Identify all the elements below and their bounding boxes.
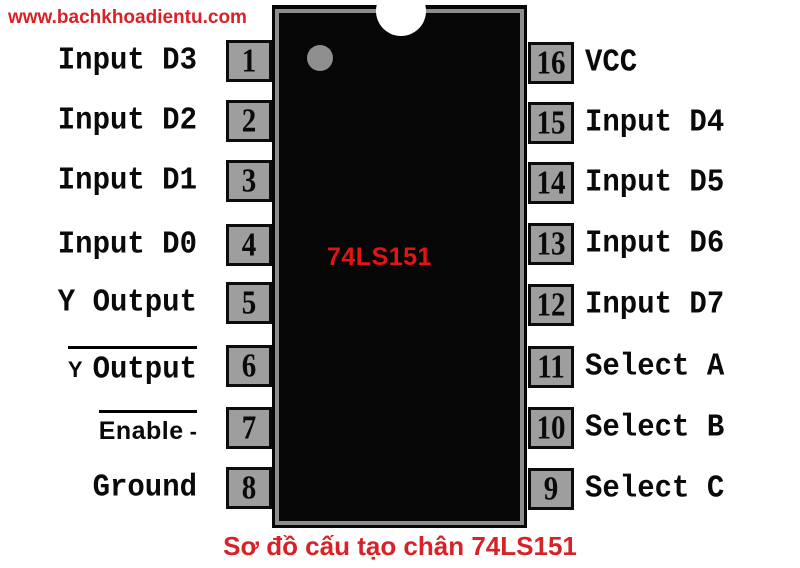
pin-number: 2 — [242, 104, 257, 137]
pin-label-suffix: - — [190, 419, 197, 445]
pin-label-text: Select B — [585, 409, 724, 446]
pin-row-12: 12Input D7 — [528, 284, 800, 326]
pin-number-box: 7 — [226, 407, 272, 449]
pin-number-box: 2 — [226, 100, 272, 142]
pin-number-box: 9 — [528, 468, 574, 510]
pin-number: 10 — [537, 411, 566, 444]
pin-label-text: VCC — [585, 44, 637, 81]
pin-number: 5 — [242, 286, 257, 319]
pin-label-text: Input D3 — [58, 42, 197, 79]
pin-number: 13 — [537, 227, 566, 260]
pin-label: Ground — [0, 467, 197, 509]
pin-number: 1 — [242, 44, 257, 77]
pin-label-text: Y Output — [58, 284, 197, 321]
pin-number-box: 11 — [528, 346, 574, 388]
pin-label: Input D4 — [585, 102, 800, 144]
pin-label: Select A — [585, 346, 800, 388]
pin-label: YOutput — [0, 345, 197, 387]
pin-number-box: 14 — [528, 162, 574, 204]
pinout-diagram: www.bachkhoadientu.com 74LS151 Input D31… — [0, 0, 800, 568]
pin-label: Input D5 — [585, 162, 800, 204]
pin-number-box: 3 — [226, 160, 272, 202]
pin-row-4: Input D04 — [0, 224, 272, 266]
pin-label-text: Select C — [585, 470, 724, 507]
pin-row-8: Ground8 — [0, 467, 272, 509]
pin-number-box: 12 — [528, 284, 574, 326]
watermark-url: www.bachkhoadientu.com — [8, 7, 247, 29]
pin-row-9: 9Select C — [528, 468, 800, 510]
pin-number: 7 — [242, 411, 257, 444]
pin-number: 12 — [537, 288, 566, 321]
pin-number-box: 15 — [528, 102, 574, 144]
pin-label-text: Input D0 — [58, 226, 197, 263]
pin-row-14: 14Input D5 — [528, 162, 800, 204]
pin-number-box: 8 — [226, 467, 272, 509]
pin-number: 14 — [537, 166, 566, 199]
pin-row-1: Input D31 — [0, 40, 272, 82]
pin-number-box: 16 — [528, 42, 574, 84]
pin1-marker-dot — [307, 45, 333, 71]
pin-label: Select B — [585, 407, 800, 449]
pin-label: Input D3 — [0, 40, 197, 82]
pin-label-text: Input D7 — [585, 286, 724, 323]
pin-row-13: 13Input D6 — [528, 223, 800, 265]
pin-label: Input D2 — [0, 100, 197, 142]
chip-part-number: 74LS151 — [327, 243, 432, 272]
pin-row-15: 15Input D4 — [528, 102, 800, 144]
pin-row-3: Input D13 — [0, 160, 272, 202]
pin-number: 15 — [537, 106, 566, 139]
pin-label-text: Enable — [99, 417, 184, 446]
pin-label-text: Input D1 — [58, 162, 197, 199]
pin-row-2: Input D22 — [0, 100, 272, 142]
pin-label-text: Input D4 — [585, 104, 724, 141]
diagram-caption: Sơ đồ cấu tạo chân 74LS151 — [0, 531, 800, 562]
pin-number-box: 13 — [528, 223, 574, 265]
pin-row-5: Y Output5 — [0, 282, 272, 324]
pin-label: VCC — [585, 42, 800, 84]
pin-number: 11 — [537, 350, 564, 383]
pin-number-box: 1 — [226, 40, 272, 82]
pin-row-7: Enable-7 — [0, 407, 272, 449]
pin-number-box: 5 — [226, 282, 272, 324]
pin-label-text: Ground — [93, 469, 197, 506]
pin-label: Input D6 — [585, 223, 800, 265]
pin-row-16: 16VCC — [528, 42, 800, 84]
chip-body: 74LS151 — [272, 5, 527, 528]
pin-number: 9 — [544, 472, 559, 505]
pin-label-text: Select A — [585, 348, 724, 385]
pin-label-text: Input D5 — [585, 164, 724, 201]
pin-label: Enable- — [0, 407, 197, 449]
pin-number: 8 — [242, 471, 257, 504]
pin-number: 3 — [242, 164, 257, 197]
pin-label-text: Output — [93, 351, 197, 388]
pin-number: 16 — [537, 46, 566, 79]
pin-label-prefix: Y — [68, 357, 83, 383]
pin-number: 6 — [242, 349, 257, 382]
pin-number-box: 10 — [528, 407, 574, 449]
pin-label: Select C — [585, 468, 800, 510]
pin-number-box: 6 — [226, 345, 272, 387]
pin-label-text: Input D2 — [58, 102, 197, 139]
pin-row-10: 10Select B — [528, 407, 800, 449]
pin-label: Y Output — [0, 282, 197, 324]
pin-label-text: Input D6 — [585, 225, 724, 262]
pin-row-6: YOutput6 — [0, 345, 272, 387]
pin-row-11: 11Select A — [528, 346, 800, 388]
pin-label: Input D7 — [585, 284, 800, 326]
pin-number-box: 4 — [226, 224, 272, 266]
pin-number: 4 — [242, 228, 257, 261]
pin-label: Input D0 — [0, 224, 197, 266]
pin-label: Input D1 — [0, 160, 197, 202]
